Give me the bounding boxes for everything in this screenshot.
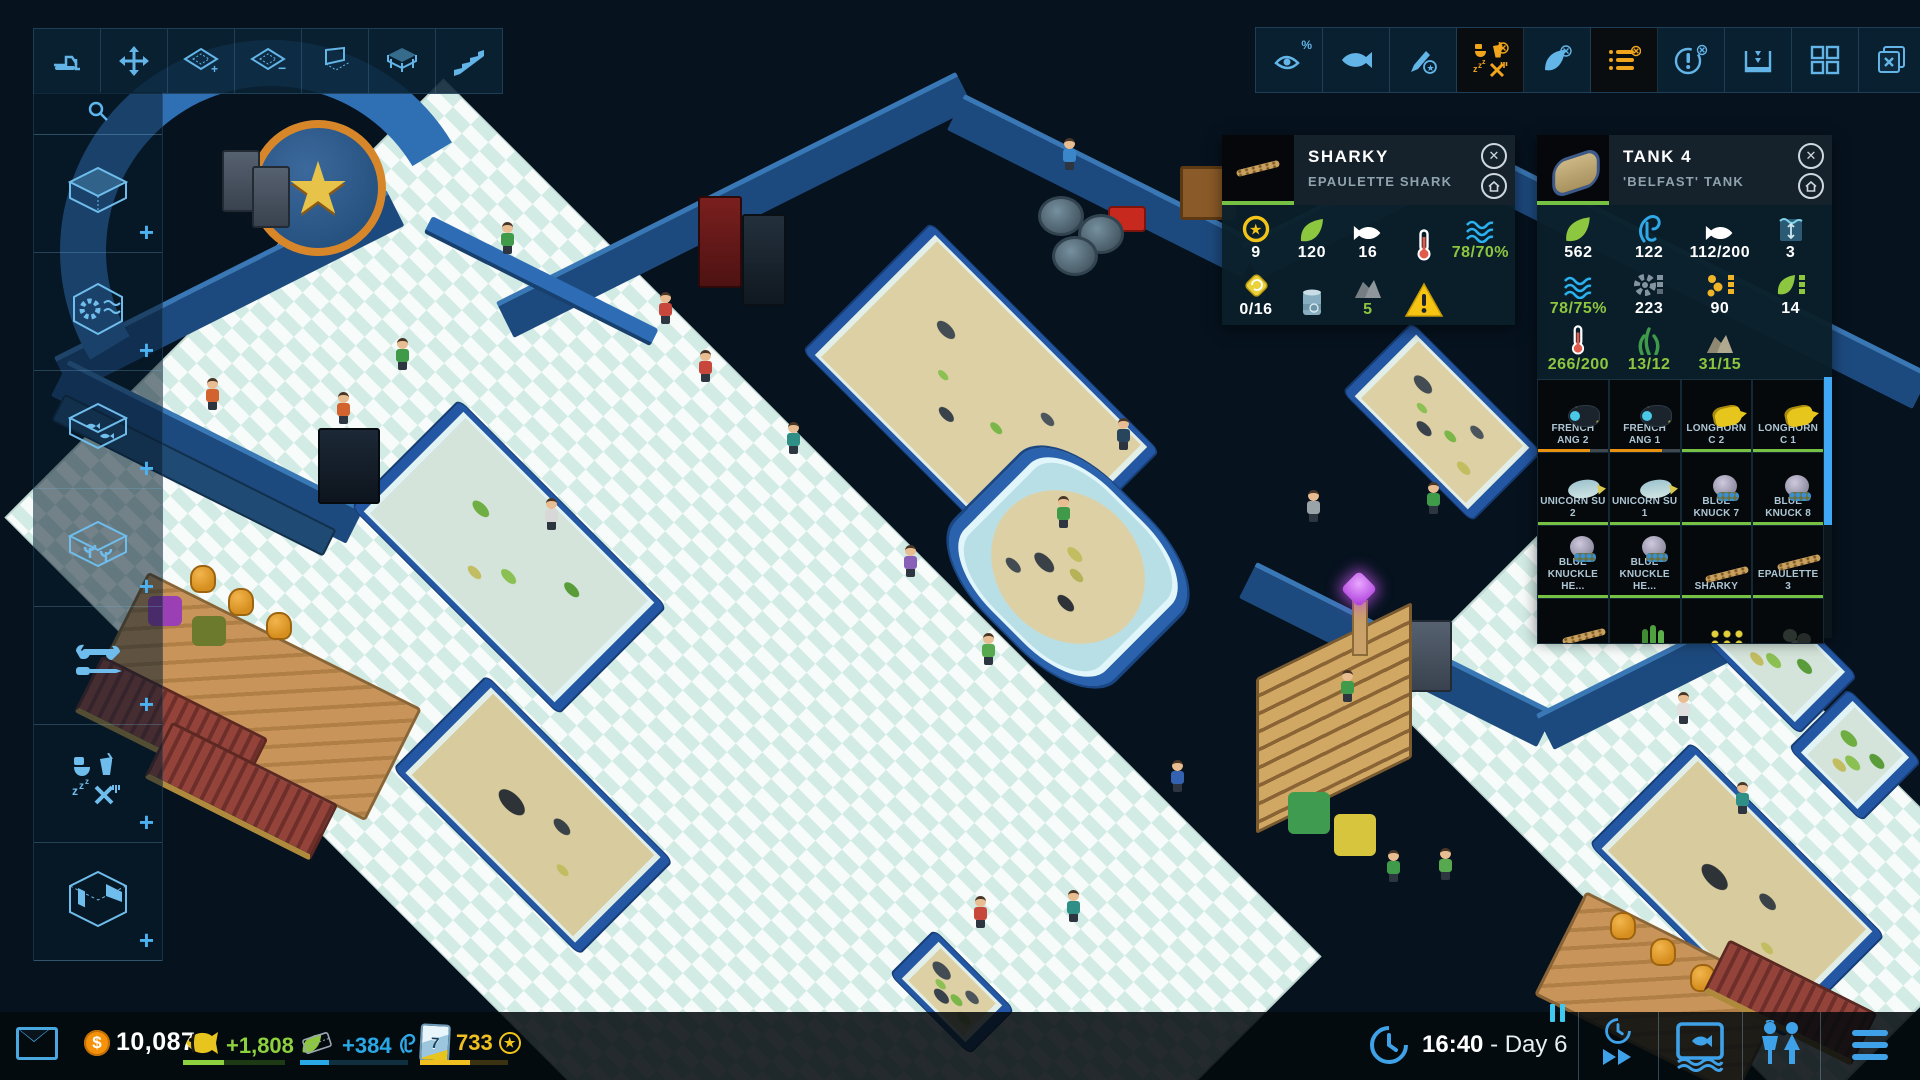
guest[interactable] <box>1116 418 1131 450</box>
build-table-button[interactable] <box>369 29 436 93</box>
alerts-overlay-button[interactable] <box>1658 28 1725 92</box>
stat-value: 112/200 <box>1690 244 1750 262</box>
livestock-item-partial[interactable] <box>1537 599 1609 644</box>
stat-value: 16 <box>1358 244 1377 262</box>
stat-capacity: 112/200 <box>1685 213 1756 262</box>
close-button[interactable]: ✕ <box>1798 143 1824 169</box>
door-panel <box>252 166 290 228</box>
guest[interactable] <box>1056 496 1071 528</box>
add-facility-plus[interactable]: + <box>139 807 154 838</box>
staff-room-icon <box>66 870 130 933</box>
waves-icon <box>1465 213 1495 243</box>
stat-value: 122 <box>1635 244 1663 262</box>
guest[interactable] <box>658 292 673 324</box>
thermometer-icon <box>1569 325 1587 355</box>
animal-panel-header: SHARKY EPAULETTE SHARK ✕ <box>1222 135 1515 205</box>
livestock-item[interactable]: BLUE KNUCKLE HE... <box>1537 526 1609 599</box>
guest[interactable] <box>336 392 351 424</box>
stat-warning[interactable] <box>1396 270 1452 319</box>
focus-home-button[interactable] <box>1798 173 1824 199</box>
food-can-icon <box>1301 288 1323 318</box>
french-angelfish-image <box>1632 401 1680 431</box>
prestige-value: 733 <box>456 1030 493 1056</box>
epaulette-shark-image <box>1775 547 1823 577</box>
move-arrows-icon <box>119 46 149 76</box>
empty-tank-icon <box>66 164 130 223</box>
time-value: 16:40 <box>1422 1031 1483 1058</box>
svg-text:−: − <box>278 60 286 75</box>
fish-tank-icon <box>66 400 130 459</box>
sidebar-item-rooms[interactable]: + <box>34 843 162 961</box>
stat-value: 5 <box>1363 301 1372 319</box>
animal-species: EPAULETTE SHARK <box>1308 174 1452 189</box>
floor-tile-minus-icon: − <box>250 47 286 75</box>
livestock-item[interactable]: SHARKY <box>1681 526 1753 599</box>
delivery-box-icon <box>1743 45 1773 75</box>
stat-rockwork: 31/15 <box>1685 325 1756 374</box>
barrel[interactable] <box>1038 196 1084 236</box>
sidebar-item-equipment[interactable]: + <box>34 253 162 371</box>
day-value: - Day 6 <box>1490 1031 1567 1058</box>
hermit-crab-image <box>1703 474 1751 504</box>
sidebar-item-tools[interactable]: + <box>34 607 162 725</box>
fish-icon <box>1339 49 1373 71</box>
door-panel <box>1408 620 1452 692</box>
svg-text:+: + <box>211 62 218 75</box>
wall-icon <box>318 46 352 76</box>
build-sidebar: + + + + + zzz + + <box>33 92 163 961</box>
unicorn-surgeonfish-image <box>1560 474 1608 504</box>
build-wall-button[interactable] <box>302 29 369 93</box>
guest[interactable] <box>1426 482 1441 514</box>
server-cabinet[interactable] <box>318 428 380 504</box>
sidebar-item-corals[interactable]: + <box>34 489 162 607</box>
species-book-icon <box>1672 1020 1728 1072</box>
money-display: $ 10,087 <box>84 1028 195 1057</box>
tank-livestock-list: FRENCH ANG 2 FRENCH ANG 1 LONGHORN C 2 L… <box>1537 379 1824 644</box>
stat-value: 78/75% <box>1550 300 1607 318</box>
stat-food <box>1284 270 1340 319</box>
svg-text:z: z <box>72 784 78 798</box>
prestige-progress-track <box>420 1060 508 1065</box>
livestock-item[interactable]: FRENCH ANG 1 <box>1609 380 1681 453</box>
rooms-grid-button[interactable] <box>1792 28 1859 92</box>
svg-text:z: z <box>1482 59 1486 66</box>
stat-value: 562 <box>1564 244 1592 262</box>
science-points: +384 <box>300 1028 416 1063</box>
guest[interactable] <box>1438 848 1453 880</box>
pause-indicator[interactable] <box>1550 1004 1565 1022</box>
dollar-coin-icon: $ <box>84 1030 110 1056</box>
stat-value: 90 <box>1710 300 1729 318</box>
guest-needs-overlay-icon: zzz <box>1471 42 1509 78</box>
speed-clock-icon <box>1603 1016 1633 1046</box>
sidebar-item-fish[interactable]: + <box>34 371 162 489</box>
science-progress-fill <box>300 1060 329 1065</box>
hermit-crab-image <box>1775 474 1823 504</box>
mail-button[interactable] <box>16 1027 58 1060</box>
percent-badge: % <box>1301 38 1312 52</box>
svg-text:★: ★ <box>1249 222 1262 239</box>
stat-food-capacity: 90 <box>1685 269 1756 318</box>
sidebar-item-tanks[interactable]: + <box>34 135 162 253</box>
seaweed-icon <box>1636 325 1662 355</box>
stat-depth: 3 <box>1755 213 1826 262</box>
longhorn-cowfish-image <box>1703 401 1751 431</box>
guest[interactable] <box>1676 692 1691 724</box>
staff-member[interactable] <box>1386 850 1401 882</box>
livestock-item[interactable]: UNICORN SU 1 <box>1609 453 1681 526</box>
purple-gem[interactable] <box>1341 571 1378 608</box>
scrollbar-thumb[interactable] <box>1824 377 1832 525</box>
time-display: 16:40 - Day 6 <box>1422 1031 1567 1059</box>
guests-staff-icon <box>1752 1020 1810 1074</box>
list-overlay-button[interactable] <box>1591 28 1658 92</box>
close-button[interactable]: ✕ <box>1481 143 1507 169</box>
epaulette-shark-image <box>1560 621 1608 644</box>
fast-forward-icon <box>1592 1047 1644 1072</box>
vending-machine[interactable] <box>742 214 786 306</box>
tank-thumbnail <box>1552 146 1600 199</box>
snails-image <box>1775 621 1823 644</box>
science-progress-track <box>300 1060 408 1065</box>
stat-plants: 13/12 <box>1614 325 1685 374</box>
visibility-overlay-button[interactable]: % <box>1256 28 1323 92</box>
stat-filtration: 122 <box>1614 213 1685 262</box>
rank-gem-icon: 7 <box>419 1023 451 1063</box>
longhorn-cowfish-image <box>1775 401 1823 431</box>
prestige-star-icon: ★ <box>1242 213 1270 243</box>
add-tank-plus[interactable]: + <box>139 217 154 248</box>
bulldozer-icon <box>52 49 82 73</box>
staff-member[interactable] <box>1340 670 1355 702</box>
fish-size-icon <box>1353 213 1383 243</box>
add-equipment-plus[interactable]: + <box>139 335 154 366</box>
stat-water-quality: 78/75% <box>1543 269 1614 318</box>
svg-text:z: z <box>79 781 84 792</box>
floor-pad-green[interactable] <box>1288 792 1330 834</box>
ecology-progress-track <box>183 1060 285 1065</box>
stat-value: 78/70% <box>1452 244 1509 262</box>
stat-value: 9 <box>1251 244 1260 262</box>
stat-value: 13/12 <box>1628 356 1671 374</box>
yellow-fish-school-image <box>1703 621 1751 644</box>
tank-top-right[interactable] <box>1344 324 1540 520</box>
rank-level: 7 <box>430 1034 439 1051</box>
stat-temperature <box>1396 213 1452 262</box>
guest[interactable] <box>698 350 713 382</box>
clay-pot[interactable] <box>1610 912 1636 940</box>
sidebar-search[interactable] <box>34 92 162 135</box>
stat-value: 14 <box>1781 300 1800 318</box>
leaf-icon <box>1298 213 1326 243</box>
tank-name: TANK 4 <box>1623 147 1744 167</box>
guest[interactable] <box>981 633 996 665</box>
people-button[interactable] <box>1752 1020 1810 1079</box>
livestock-item[interactable]: LONGHORN C 2 <box>1681 380 1753 453</box>
table-icon <box>385 46 419 76</box>
add-floor-button[interactable]: + <box>168 29 235 93</box>
stat-value: 266/200 <box>1548 356 1609 374</box>
leaf-toggle-icon <box>1541 44 1573 76</box>
remove-floor-button[interactable]: − <box>235 29 302 93</box>
warning-icon <box>1404 288 1444 318</box>
svg-text:★: ★ <box>1427 63 1435 73</box>
alert-toggle-icon <box>1674 44 1708 76</box>
tank-panel-header: TANK 4 'BELFAST' TANK ✕ <box>1537 135 1832 205</box>
stat-value: 223 <box>1635 300 1663 318</box>
stat-growth: 0/16 <box>1228 270 1284 319</box>
deliveries-button[interactable] <box>1725 28 1792 92</box>
megaquarium-screenshot: { "toolbar_left": { "buttons": [ {"icon"… <box>0 0 1920 1080</box>
guest[interactable] <box>1735 782 1750 814</box>
gear-capacity-icon <box>1633 269 1665 299</box>
stat-equipment-capacity: 223 <box>1614 269 1685 318</box>
growth-gem-icon <box>1241 270 1271 300</box>
stat-temperature: 266/200 <box>1543 325 1614 374</box>
waves-icon <box>1563 269 1593 299</box>
pump-icon-small <box>398 1031 416 1060</box>
prestige-points: 7 733 ★ <box>420 1024 521 1062</box>
add-tools-plus[interactable]: + <box>139 689 154 720</box>
guest[interactable] <box>1306 490 1321 522</box>
ecology-rate: +1,808 <box>226 1033 294 1059</box>
menu-button[interactable] <box>1852 1030 1888 1060</box>
guest[interactable] <box>973 896 988 928</box>
sidebar-item-guest-facilities[interactable]: zzz + <box>34 725 162 843</box>
equipment-gear-waves-icon <box>68 281 128 342</box>
eye-percent-icon <box>1274 49 1304 71</box>
svg-text:z: z <box>85 777 89 786</box>
tank-portrait <box>1537 135 1609 205</box>
status-bar: $ 10,087 +1,808 +384 7 733 ★ 16:40 - Day… <box>0 1012 1920 1080</box>
livestock-scrollbar[interactable] <box>1824 377 1832 638</box>
guest[interactable] <box>903 545 918 577</box>
science-rate: +384 <box>342 1033 392 1059</box>
livestock-item[interactable]: BLUE KNUCKLE HE... <box>1609 526 1681 599</box>
search-icon <box>87 100 109 127</box>
livestock-item[interactable]: UNICORN SU 2 <box>1537 453 1609 526</box>
decoration-overlay-button[interactable]: ★ <box>1390 28 1457 92</box>
stat-appeal: 120 <box>1284 213 1340 262</box>
rock-icon <box>1353 270 1383 300</box>
clay-pot[interactable] <box>228 588 254 616</box>
animal-portrait <box>1222 135 1294 205</box>
plant-capacity-icon <box>1775 269 1807 299</box>
guest[interactable] <box>500 222 515 254</box>
coral-tank-icon <box>66 518 130 577</box>
hermit-crab-image <box>1632 535 1680 565</box>
prestige-progress-fill <box>420 1060 470 1065</box>
guest[interactable] <box>395 338 410 370</box>
speed-button[interactable] <box>1592 1016 1644 1072</box>
thermometer-icon <box>1415 231 1433 261</box>
guest[interactable] <box>544 498 559 530</box>
guest[interactable] <box>786 422 801 454</box>
stat-value: 31/15 <box>1699 356 1742 374</box>
stat-value: 0/16 <box>1239 301 1272 319</box>
animal-info-panel: SHARKY EPAULETTE SHARK ✕ ★ 9 120 16 78/7… <box>1222 135 1515 325</box>
food-capacity-icon <box>1704 269 1736 299</box>
appeal-overlay-button[interactable] <box>1524 28 1591 92</box>
stat-rock: 5 <box>1340 270 1396 319</box>
tank-info-panel: TANK 4 'BELFAST' TANK ✕ 562 122 112/200 … <box>1537 135 1832 638</box>
livestock-item-partial[interactable] <box>1681 599 1753 644</box>
journal-button[interactable] <box>1672 1020 1728 1077</box>
stat-plant-capacity: 14 <box>1755 269 1826 318</box>
grid-icon <box>1810 45 1840 75</box>
floor-pad-yellow[interactable] <box>1334 814 1376 856</box>
clock-icon <box>1368 1024 1410 1071</box>
livestock-item-partial[interactable] <box>1609 599 1681 644</box>
stat-appeal: 562 <box>1543 213 1614 262</box>
livestock-item-partial[interactable] <box>1752 599 1824 644</box>
green-plant-image <box>1632 621 1680 644</box>
star-circle-icon: ★ <box>499 1032 521 1054</box>
leaf-icon <box>1563 213 1593 243</box>
build-stairs-button[interactable] <box>436 29 502 93</box>
pump-icon <box>1636 213 1662 243</box>
livestock-item[interactable]: EPAULETTE 3 <box>1752 526 1824 599</box>
overlay-toolbar: % ★ zzz <box>1255 27 1920 93</box>
close-windows-icon <box>1876 45 1908 75</box>
floor-tile-plus-icon: + <box>183 47 219 75</box>
epaulette-shark-image <box>1703 559 1751 589</box>
clay-pot[interactable] <box>1650 938 1676 966</box>
unicorn-surgeonfish-image <box>1632 474 1680 504</box>
stat-prestige: ★ 9 <box>1228 213 1284 262</box>
tank-type: 'BELFAST' TANK <box>1623 174 1744 189</box>
livestock-item[interactable]: LONGHORN C 1 <box>1752 380 1824 453</box>
livestock-item[interactable]: BLUE KNUCK 7 <box>1681 453 1753 526</box>
add-coral-plus[interactable]: + <box>139 571 154 602</box>
guest-needs-icon: zzz <box>66 753 130 814</box>
stat-value: 120 <box>1298 244 1326 262</box>
fish-overlay-button[interactable] <box>1323 28 1390 92</box>
guest-needs-overlay-button[interactable]: zzz <box>1457 28 1524 92</box>
add-fish-plus[interactable]: + <box>139 453 154 484</box>
epaulette-shark-image <box>1234 153 1282 183</box>
clay-pot[interactable] <box>266 612 292 640</box>
guest[interactable] <box>205 378 220 410</box>
stat-value: 3 <box>1786 244 1795 262</box>
staff-member[interactable] <box>1062 138 1077 170</box>
demolish-button[interactable] <box>34 29 101 93</box>
stat-water-quality: 78/70% <box>1452 213 1509 262</box>
guest[interactable] <box>1170 760 1185 792</box>
rock-icon <box>1705 325 1735 355</box>
food-station-olive[interactable] <box>192 616 226 646</box>
ecology-progress-fill <box>183 1060 224 1065</box>
barrel[interactable] <box>1052 236 1098 276</box>
build-toolbar: + − <box>33 28 503 94</box>
clay-pot[interactable] <box>190 565 216 593</box>
livestock-item[interactable]: BLUE KNUCK 8 <box>1752 453 1824 526</box>
animal-name: SHARKY <box>1308 147 1452 167</box>
french-angelfish-image <box>1560 401 1608 431</box>
tools-icon <box>70 641 126 690</box>
brush-star-icon: ★ <box>1408 45 1438 75</box>
focus-home-button[interactable] <box>1481 173 1507 199</box>
guest[interactable] <box>1066 890 1081 922</box>
list-toggle-icon <box>1607 45 1641 75</box>
hermit-crab-image <box>1560 535 1608 565</box>
add-room-plus[interactable]: + <box>139 925 154 956</box>
gem-post <box>1352 600 1368 656</box>
water-depth-icon <box>1778 213 1804 243</box>
livestock-item[interactable]: FRENCH ANG 2 <box>1537 380 1609 453</box>
move-button[interactable] <box>101 29 168 93</box>
blueprint-icon <box>300 1028 336 1063</box>
stat-size: 16 <box>1340 213 1396 262</box>
stairs-icon <box>452 46 486 76</box>
close-all-windows-button[interactable] <box>1859 28 1920 92</box>
fish-size-icon <box>1705 213 1735 243</box>
vending-machine[interactable] <box>698 196 742 288</box>
envelope-icon <box>16 1027 58 1060</box>
